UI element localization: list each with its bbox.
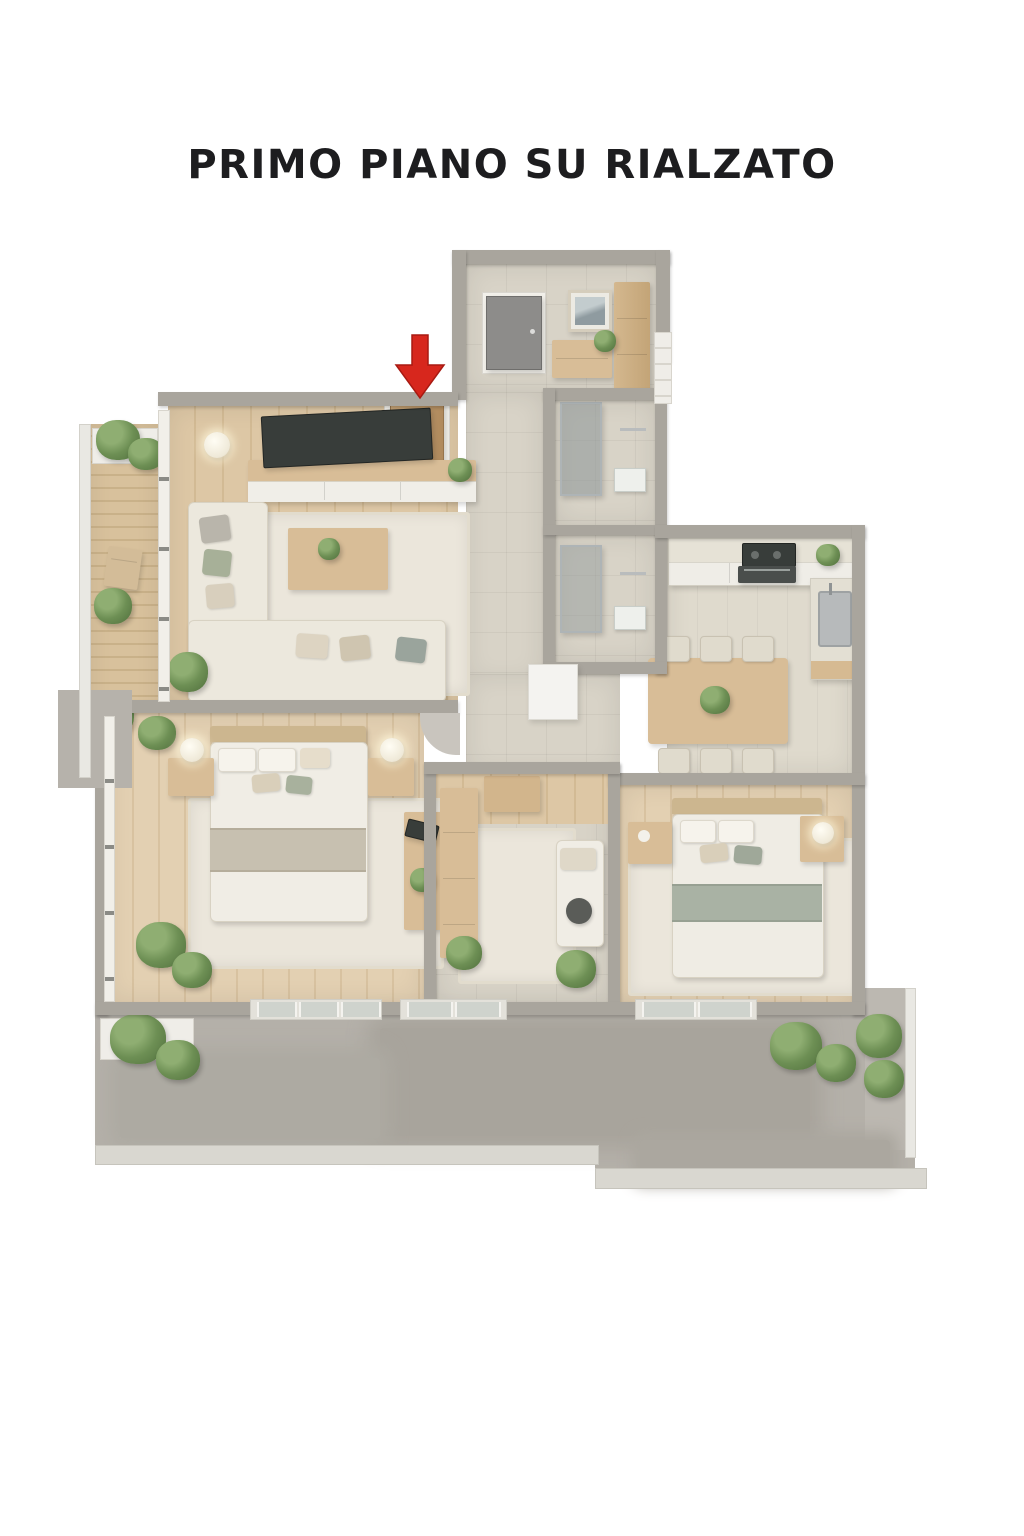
terrace-plant-4 [816, 1044, 856, 1082]
study-shelf-unit [440, 788, 478, 958]
wall-study-top [424, 762, 620, 774]
dining-centerpiece [700, 686, 730, 714]
wall-study-right [608, 762, 620, 1002]
bed2-pillow-white [680, 820, 716, 843]
wall-right-outer [852, 525, 865, 1015]
glass-pane [698, 1002, 752, 1017]
study-plant-2 [556, 950, 596, 988]
coffee-table [288, 528, 388, 590]
terrace-plant-6 [864, 1060, 904, 1098]
balcony-glass-railing [79, 424, 91, 778]
bed1-pillow-white [218, 748, 256, 772]
bed1-nightstand-left [168, 758, 214, 796]
front-door [486, 296, 542, 370]
wall-curved [420, 713, 460, 755]
faucet [829, 583, 832, 595]
bathroom-2-fixture [620, 572, 646, 575]
console-plant [448, 458, 472, 482]
hallway-floor [466, 392, 543, 682]
wall-bedroom2-top [608, 773, 865, 785]
sofa-pillow-taupe [339, 634, 371, 661]
bedroom-1-plant-2 [172, 952, 212, 988]
glass-pane [341, 1002, 381, 1017]
sofa-pillow-sage [202, 549, 233, 578]
sink-unit [810, 578, 856, 680]
bathroom-1-shower [560, 402, 602, 496]
picture-art [575, 297, 605, 325]
bathroom-1-fixture [620, 428, 646, 431]
wall-bath-divider [543, 525, 667, 535]
bed2-headboard [672, 798, 822, 814]
cooktop [742, 543, 796, 567]
sofa-pillow-gray [198, 514, 231, 544]
bed1-throw-blanket [210, 828, 366, 872]
wall-study-left [424, 762, 436, 1002]
daybed-cushion [566, 898, 592, 924]
terrace-sliding-door-3 [635, 999, 757, 1020]
terrace-blur-patch [380, 1028, 810, 1136]
dining-chair [658, 748, 690, 774]
glass-pane [642, 1002, 696, 1017]
bed1-pillow-white [258, 748, 296, 772]
hall-wardrobe-cabinet [614, 282, 650, 392]
study-cabinet [484, 776, 540, 812]
terrace-right-glass-railing [905, 988, 916, 1158]
bed2-lamp [812, 822, 834, 844]
floor-lamp [204, 432, 230, 458]
door-handle [530, 329, 535, 334]
bathroom-2-towels [614, 606, 646, 630]
glass-pane [455, 1002, 501, 1017]
sofa-pillow-cream [295, 633, 329, 659]
bed2-pillow-sage [733, 845, 762, 865]
balcony-plant-5 [138, 716, 176, 750]
bed1-lamp-right [380, 738, 404, 762]
wall-bath-top [543, 388, 667, 400]
dining-chair [742, 748, 774, 774]
bed1-pillow-taupe [251, 773, 280, 793]
tv [261, 408, 433, 469]
terrace-sliding-door-2 [400, 999, 507, 1020]
sofa-pillow-beige [205, 583, 235, 609]
bed1-nightstand-right [368, 758, 414, 796]
picture-frame [568, 290, 612, 332]
bed1-headboard [210, 726, 366, 742]
wall-kitchen-top [655, 525, 865, 538]
balcony-corner-block [58, 690, 132, 788]
sofa-pillow-graygreen [395, 636, 428, 663]
terrace-plant-5 [856, 1014, 902, 1058]
coffee-table-plant [318, 538, 340, 560]
bathroom-2-shower [560, 545, 602, 633]
floor-plan [0, 0, 1024, 1536]
living-window-frame [158, 410, 170, 702]
terrace-stone-curb [95, 1145, 599, 1165]
study-plant-1 [446, 936, 482, 970]
stair-railing [654, 332, 672, 404]
kitchen-plant [816, 544, 840, 566]
terrace-plant-3 [770, 1022, 822, 1070]
glass-pane [299, 1002, 339, 1017]
bed1-lamp-left [180, 738, 204, 762]
balcony-plant-3 [94, 588, 132, 624]
entrance-arrow-marker [392, 334, 448, 400]
glass-pane [257, 1002, 297, 1017]
dining-chair [700, 636, 732, 662]
daybed-pillow [560, 848, 596, 870]
living-plant [168, 652, 208, 692]
dining-chair [742, 636, 774, 662]
bed2-nightstand-left [628, 822, 672, 864]
terrace-extension-curb [595, 1168, 927, 1189]
bed1-pillow-beige [300, 748, 330, 768]
terrace-plant-2 [156, 1040, 200, 1080]
bed2-nightstand-decor [638, 830, 650, 842]
bedroom1-window-frame [104, 716, 115, 1002]
glass-pane [407, 1002, 453, 1017]
wall-hall-top [452, 250, 670, 264]
page: { "title": "PRIMO PIANO SU RIALZATO", "f… [0, 0, 1024, 1536]
hall-plant [594, 330, 616, 352]
wall-hall-left [452, 250, 466, 400]
dining-chair [700, 748, 732, 774]
bed2-throw-blanket [672, 884, 822, 922]
bathroom-1-towels [614, 468, 646, 492]
balcony-chair [103, 546, 142, 590]
bed1-pillow-sage [285, 775, 313, 796]
bed2-pillow-beige [699, 843, 729, 864]
bed2-pillow-white [718, 820, 754, 843]
hall-column [528, 664, 578, 720]
oven [738, 566, 796, 583]
terrace-sliding-door-1 [250, 999, 382, 1020]
sink-basin [818, 591, 852, 647]
